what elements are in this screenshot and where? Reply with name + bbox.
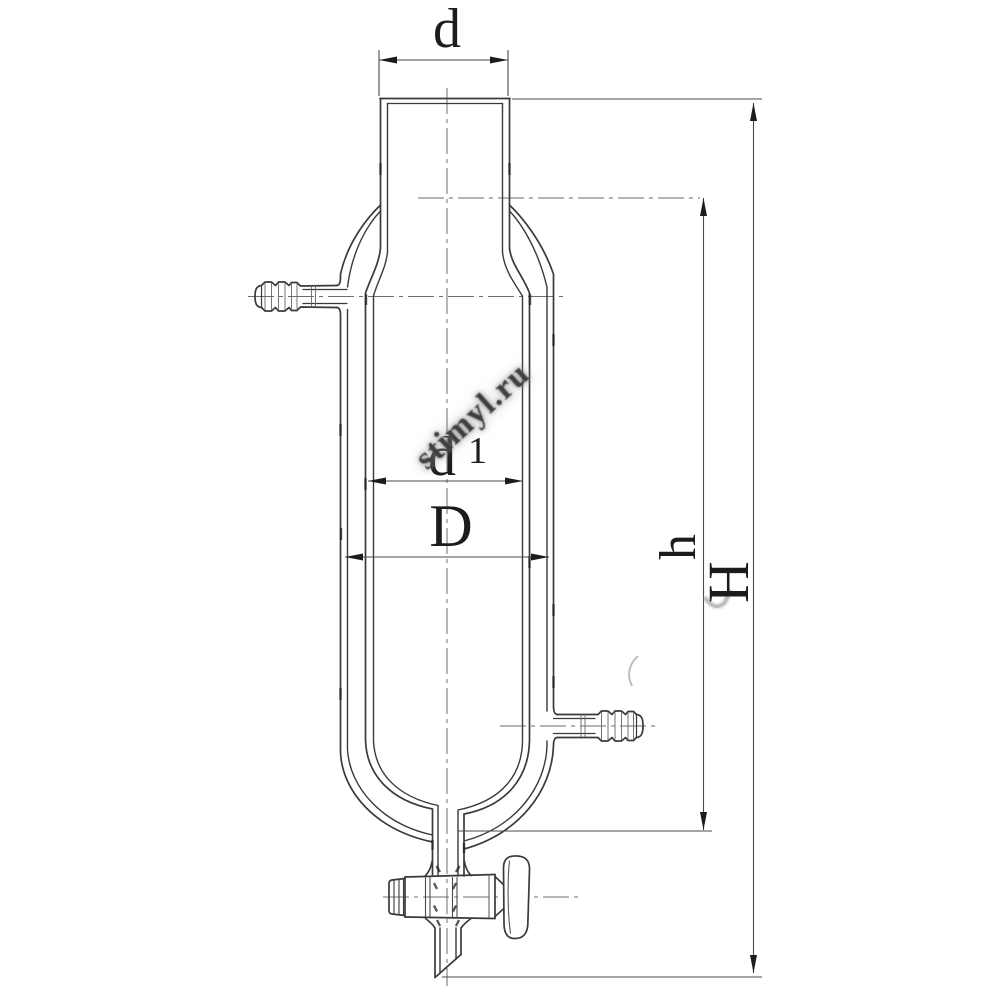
- dimension-H: [442, 99, 762, 977]
- stopcock-handle: [495, 856, 530, 939]
- label-total-height: H: [697, 550, 761, 614]
- vessel-line-drawing: [0, 0, 1000, 1000]
- label-neck-diameter: d: [424, 1, 470, 57]
- technical-drawing-canvas: d d1 D h H stimyl.ru: [0, 0, 1000, 1000]
- dimension-arrows: [345, 57, 757, 974]
- drain-stopcock: [389, 856, 530, 978]
- vessel-neck: [380, 99, 510, 104]
- label-body-diameter: D: [424, 496, 478, 556]
- stray-arc-mark: [629, 656, 638, 686]
- outlet-tube: [435, 928, 461, 978]
